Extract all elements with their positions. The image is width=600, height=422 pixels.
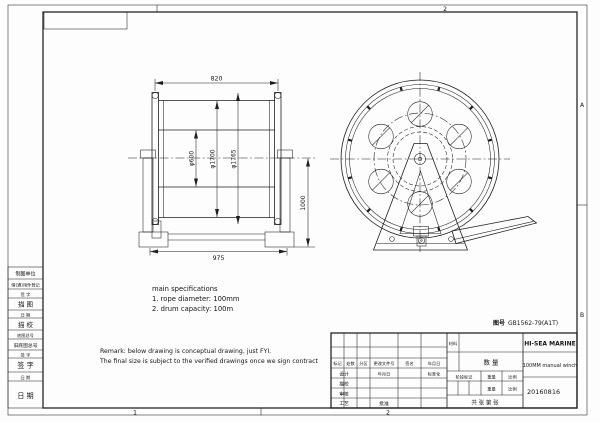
dim-text-flange: φ1765 <box>231 149 238 168</box>
product-name: 100MM manual winch <box>523 363 578 369</box>
dim-text-barrel: φ600 <box>189 151 196 167</box>
remark-line: Remark: below drawing is conceptual draw… <box>100 348 271 355</box>
remark-notes: Remark: below drawing is conceptual draw… <box>99 348 318 365</box>
dim-text-base: 975 <box>213 255 225 262</box>
attach-row-label: 制图单位 <box>15 271 35 278</box>
attach-row-label: 描 图 <box>18 300 33 309</box>
title-block: 标记 处数 分区 更改文件号 签名 年月日 设计 年月日 标准化 描校 审核 工… <box>331 333 577 408</box>
trace-check-label: 描校 <box>339 380 349 387</box>
date-col-label: 年月日 <box>378 370 391 377</box>
attach-row-label: 日 期 <box>17 392 33 400</box>
stage-label: 阶段标记 <box>456 374 474 381</box>
dim-1000: 1000 <box>294 159 315 248</box>
rev-header-zone: 分区 <box>359 360 367 367</box>
quantity-label: 数 量 <box>483 358 499 367</box>
attach-row-label: 描 校 <box>18 320 34 329</box>
attach-row-label: 借(通)用件登记 <box>11 282 40 289</box>
attach-row-label: 底图总号 <box>17 332 34 339</box>
rev-header-change-doc: 更改文件号 <box>374 360 395 367</box>
remark-line: The final size is subject to the verifie… <box>99 358 318 365</box>
doc-number-label: 图号 <box>493 319 505 327</box>
rev-header-date: 年月日 <box>428 360 441 367</box>
doc-number-value: GB1562-79(A1T) <box>508 320 558 327</box>
attach-row-label: 签 字 <box>21 351 31 357</box>
dim-820: 820 <box>155 76 278 92</box>
dim-text-width: 820 <box>211 76 223 83</box>
zone-number-top: 2 <box>443 6 447 13</box>
attach-row-label: 旧底图总号 <box>14 342 38 349</box>
front-view-drum: 820 φ600 φ1700 φ1765 1000 975 <box>128 76 316 263</box>
design-label: 设计 <box>339 370 349 377</box>
scale-label: 比例 <box>508 374 516 381</box>
zone-number-bottom-left: 1 <box>133 410 137 417</box>
side-view-wheel <box>330 72 537 252</box>
dim-text-height: 1000 <box>300 195 307 210</box>
pawl-bracket <box>152 221 161 238</box>
handle-lever <box>452 217 537 244</box>
top-left-reference-box <box>44 12 127 29</box>
zone-letter-a: A <box>580 102 585 109</box>
rev-header-mark: 标记 <box>333 360 342 367</box>
spec-title: main specifications <box>152 285 218 293</box>
doc-number: 图号 GB1562-79(A1T) <box>493 319 558 327</box>
process-label: 工艺 <box>339 401 349 407</box>
scale-value-label: 比例 <box>508 386 516 393</box>
weight-label: 重量 <box>487 374 495 381</box>
standardization-label: 标准化 <box>428 370 441 377</box>
drum-pedestals <box>139 150 294 247</box>
border-frame: 2 1 2 A B <box>8 5 587 417</box>
company-name: HI-SEA MARINE <box>524 341 575 348</box>
attach-row-label: 日 期 <box>21 375 31 381</box>
zone-number-bottom-right: 2 <box>386 410 390 417</box>
left-attachment-column: 制图单位 借(通)用件登记 签 字 描 图 日 期 描 校 底图总号 旧底图总号… <box>8 267 43 408</box>
spec-notes: main specifications 1. rope diameter: 10… <box>152 285 240 313</box>
review-label: 审核 <box>339 390 349 397</box>
sheets-label: 共 张 第 张 <box>471 399 499 407</box>
spec-item: 1. rope diameter: 100mm <box>152 295 240 303</box>
dim-975: 975 <box>150 248 287 262</box>
cad-canvas: 2 1 2 A B 制图单位 借(通)用件登记 签 字 描 图 日 期 描 校 … <box>0 0 600 422</box>
rev-header-sign: 签名 <box>405 360 413 367</box>
attach-row-label: 签 字 <box>17 361 33 370</box>
dim-text-rope-stack: φ1700 <box>210 149 217 168</box>
spec-item: 2. drum capacity: 100m <box>152 305 233 313</box>
drawing-sheet: 2 1 2 A B 制图单位 借(通)用件登记 签 字 描 图 日 期 描 校 … <box>0 0 600 422</box>
material-label: 材料 <box>449 340 458 347</box>
attach-row-label: 日 期 <box>21 312 31 318</box>
approve-label: 批准 <box>379 400 389 407</box>
weight-value-label: 重量 <box>487 386 495 393</box>
rev-header-count: 处数 <box>346 360 355 367</box>
zone-letter-b: B <box>580 312 584 319</box>
drawing-date: 20160816 <box>527 388 560 396</box>
dim-diameters: φ600 φ1700 φ1765 <box>189 93 239 224</box>
attach-row-label: 签 字 <box>21 291 31 297</box>
